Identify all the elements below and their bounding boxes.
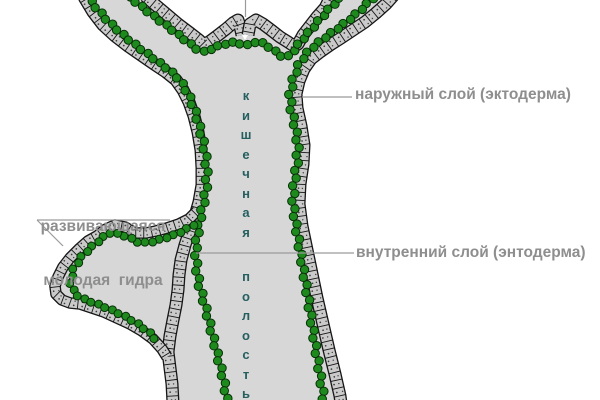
cavity-label-word2: полость <box>237 267 255 400</box>
inner-layer-label: внутренний слой (энтодерма) <box>356 244 586 262</box>
outer-layer-label: наружный слой (эктодерма) <box>355 86 571 104</box>
cavity-label-word1: кишечная <box>237 86 255 242</box>
bud-label-line1: развивающаяся <box>33 218 173 236</box>
bud-label-line2: молодая гидра <box>33 272 173 290</box>
hydra-diagram: наружный слой (эктодерма) внутренний сло… <box>0 0 600 400</box>
bud-label: развивающаяся молодая гидра <box>33 182 173 326</box>
